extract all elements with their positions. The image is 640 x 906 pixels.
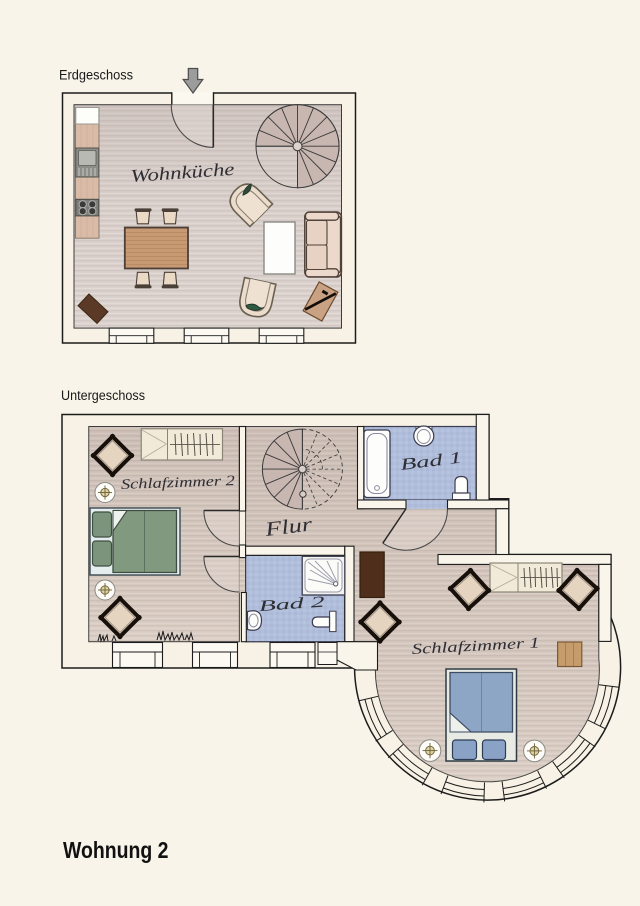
svg-text:Wohnung 2: Wohnung 2 [63,837,169,863]
svg-text:Untergeschoss: Untergeschoss [61,388,145,404]
svg-text:Erdgeschoss: Erdgeschoss [59,68,133,84]
